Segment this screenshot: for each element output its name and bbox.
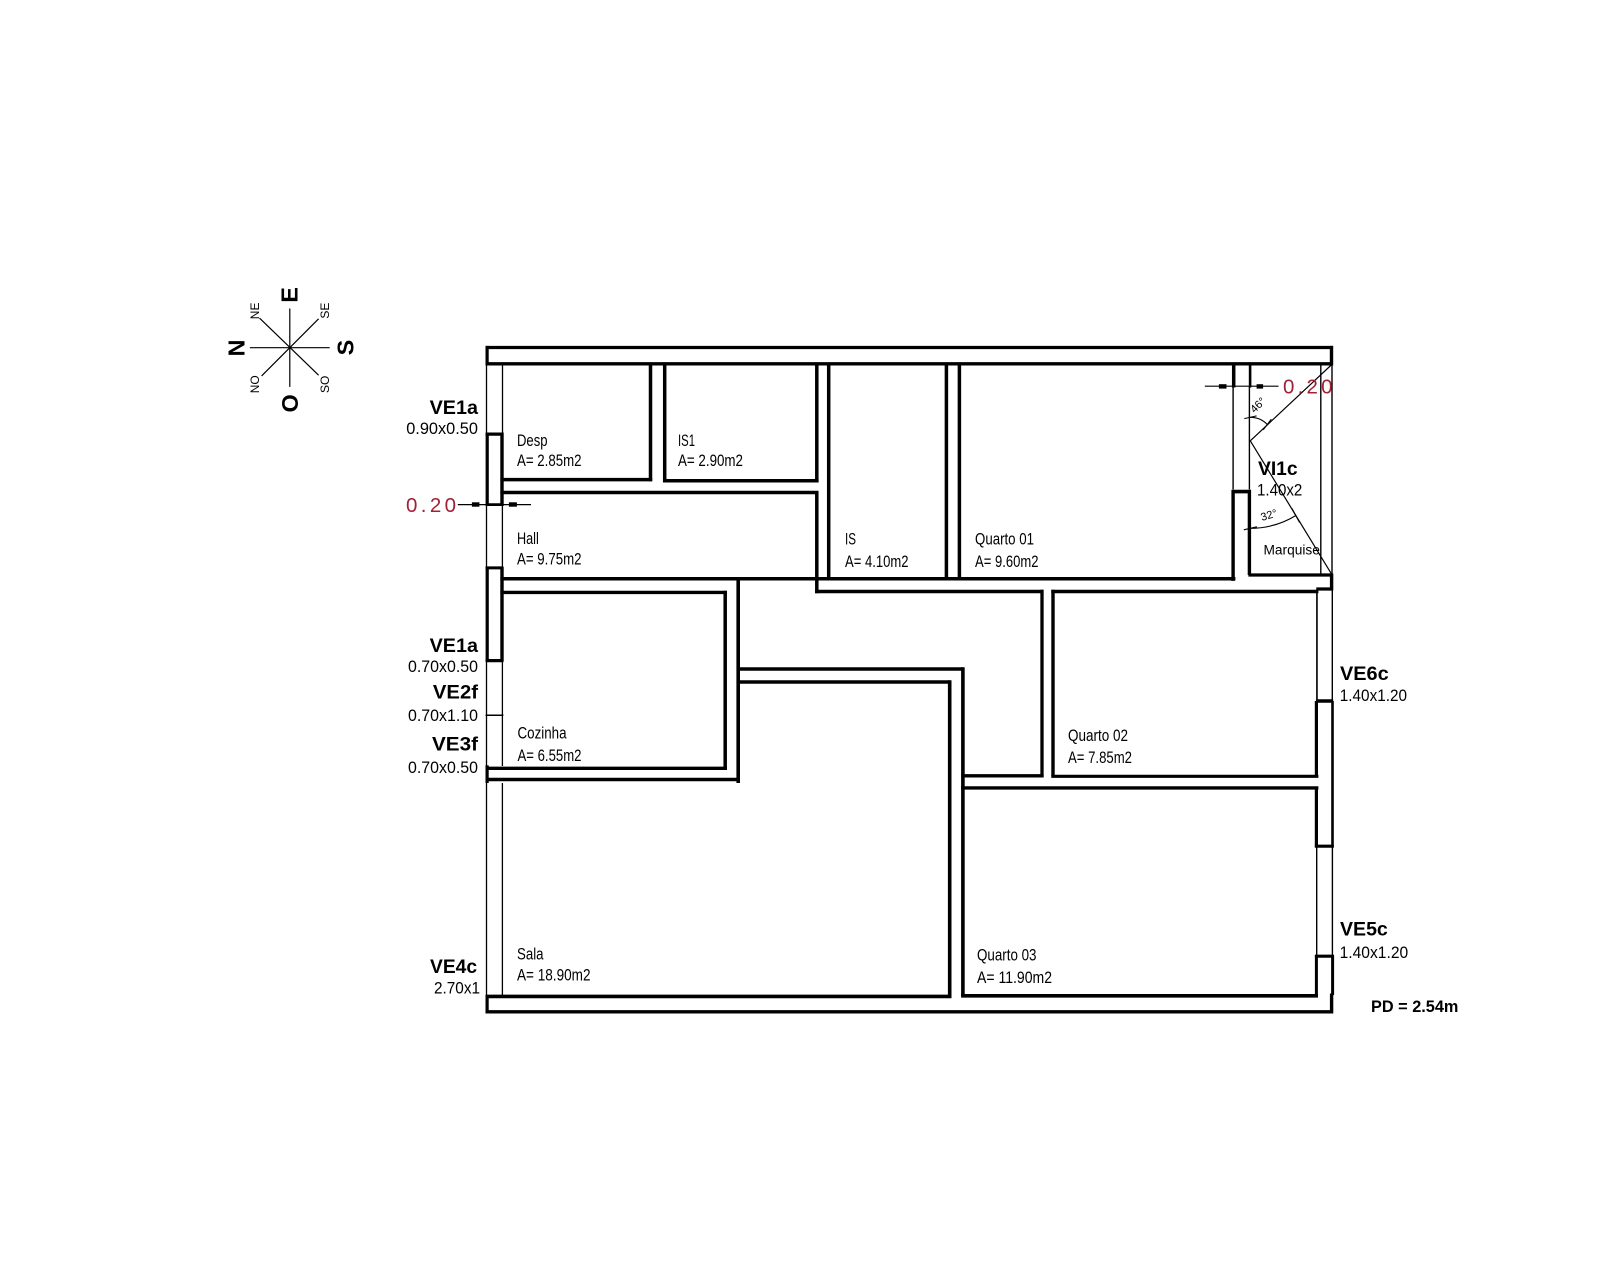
svg-text:Sala: Sala	[517, 945, 544, 964]
svg-text:Quarto 01: Quarto 01	[975, 530, 1034, 549]
svg-text:VE6c: VE6c	[1340, 663, 1389, 685]
svg-text:SO: SO	[318, 376, 332, 393]
svg-text:VE4c: VE4c	[430, 956, 477, 978]
svg-text:1.40x2: 1.40x2	[1257, 481, 1302, 500]
svg-text:VE3f: VE3f	[432, 734, 479, 756]
svg-text:VE1a: VE1a	[430, 397, 479, 419]
svg-text:0.20: 0.20	[1283, 376, 1333, 399]
svg-text:2.70x1: 2.70x1	[434, 979, 480, 998]
svg-text:Hall: Hall	[517, 529, 539, 548]
svg-text:0.70x0.50: 0.70x0.50	[408, 758, 478, 777]
svg-text:A= 18.90m2: A= 18.90m2	[517, 966, 591, 985]
svg-text:Quarto 02: Quarto 02	[1068, 726, 1128, 745]
svg-text:Marquise: Marquise	[1264, 543, 1320, 558]
svg-text:A= 7.85m2: A= 7.85m2	[1068, 748, 1132, 767]
svg-text:A= 6.55m2: A= 6.55m2	[518, 746, 582, 765]
svg-text:A= 11.90m2: A= 11.90m2	[977, 968, 1052, 987]
svg-text:VE1a: VE1a	[430, 635, 479, 657]
svg-text:0.90x0.50: 0.90x0.50	[406, 419, 478, 438]
svg-text:A= 4.10m2: A= 4.10m2	[845, 552, 909, 571]
svg-text:O: O	[277, 394, 303, 412]
svg-text:Quarto 03: Quarto 03	[977, 946, 1037, 965]
svg-text:Cozinha: Cozinha	[518, 724, 567, 743]
svg-text:0.70x1.10: 0.70x1.10	[408, 706, 478, 725]
svg-text:VI1c: VI1c	[1258, 458, 1298, 480]
svg-text:0.20: 0.20	[406, 494, 456, 517]
svg-text:A= 2.85m2: A= 2.85m2	[517, 451, 582, 470]
svg-text:A= 2.90m2: A= 2.90m2	[678, 451, 743, 470]
svg-text:VE5c: VE5c	[1340, 918, 1388, 940]
svg-text:SE: SE	[318, 303, 332, 319]
svg-text:E: E	[276, 287, 302, 303]
svg-text:PD = 2.54m: PD = 2.54m	[1371, 997, 1458, 1016]
svg-text:A= 9.60m2: A= 9.60m2	[975, 552, 1039, 571]
svg-text:A= 9.75m2: A= 9.75m2	[517, 550, 582, 569]
svg-text:NE: NE	[248, 303, 262, 320]
svg-text:1.40x1.20: 1.40x1.20	[1340, 686, 1407, 705]
svg-text:IS: IS	[845, 530, 856, 549]
svg-text:N: N	[223, 340, 249, 357]
svg-text:Desp: Desp	[517, 431, 548, 450]
svg-text:NO: NO	[248, 375, 262, 393]
svg-text:VE2f: VE2f	[433, 682, 479, 704]
svg-text:1.40x1.20: 1.40x1.20	[1340, 943, 1409, 962]
svg-text:IS1: IS1	[678, 431, 695, 450]
svg-text:0.70x0.50: 0.70x0.50	[408, 657, 478, 676]
svg-text:S: S	[333, 340, 359, 356]
